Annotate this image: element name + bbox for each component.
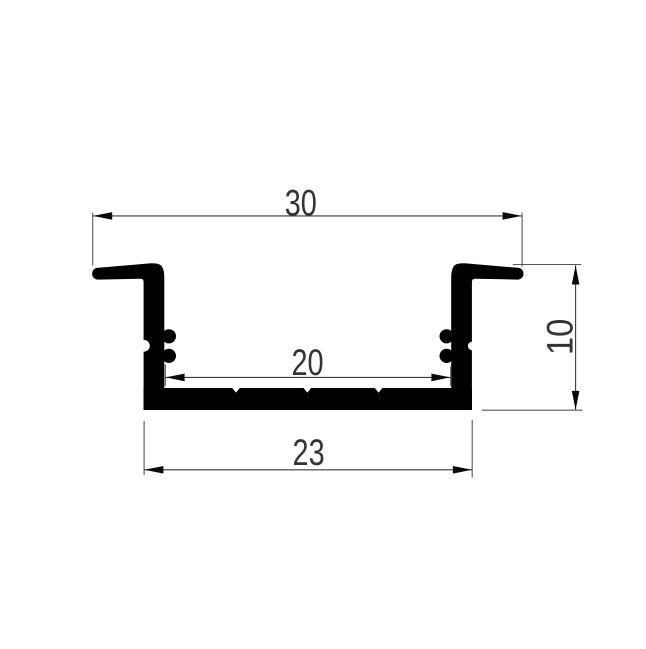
svg-text:30: 30 bbox=[285, 182, 317, 223]
svg-text:23: 23 bbox=[293, 432, 325, 473]
svg-text:20: 20 bbox=[291, 342, 323, 383]
svg-text:10: 10 bbox=[540, 319, 581, 355]
